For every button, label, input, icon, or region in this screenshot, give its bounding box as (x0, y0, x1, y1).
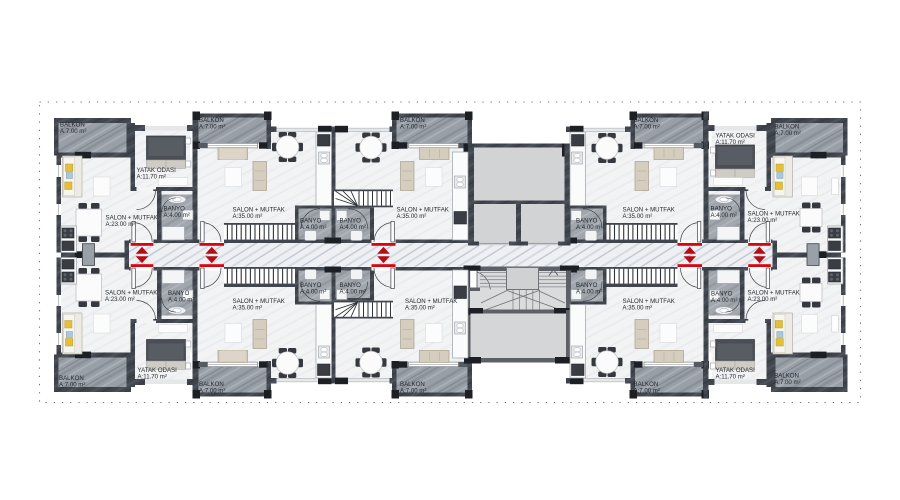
svg-text:A:4.00 m²: A:4.00 m² (300, 289, 326, 296)
svg-text:A:7.00 m²: A:7.00 m² (634, 388, 660, 395)
svg-text:A:23.00 m²: A:23.00 m² (105, 296, 135, 303)
svg-text:A:4.00 m²: A:4.00 m² (576, 224, 602, 231)
svg-text:A:7.00 m²: A:7.00 m² (199, 124, 225, 131)
svg-text:A:35.00 m²: A:35.00 m² (623, 213, 653, 220)
svg-text:A:4.00 m²: A:4.00 m² (340, 224, 366, 231)
svg-text:A:7.00 m²: A:7.00 m² (634, 124, 660, 131)
svg-text:A:7.00 m²: A:7.00 m² (59, 382, 85, 389)
svg-text:A:35.00 m²: A:35.00 m² (405, 304, 435, 311)
svg-text:A:4.00 m²: A:4.00 m² (164, 212, 190, 219)
svg-text:A:23.00 m²: A:23.00 m² (106, 221, 136, 228)
svg-text:A:35.00 m²: A:35.00 m² (233, 304, 263, 311)
svg-text:A:35.00 m²: A:35.00 m² (233, 213, 263, 220)
svg-text:A:4.00 m²: A:4.00 m² (576, 289, 602, 296)
svg-text:A:7.00 m²: A:7.00 m² (400, 388, 426, 395)
svg-text:A:35.00 m²: A:35.00 m² (623, 304, 653, 311)
svg-text:A:11.70 m²: A:11.70 m² (138, 374, 167, 381)
svg-text:A:11.70 m²: A:11.70 m² (137, 174, 166, 181)
svg-text:A:7.00 m²: A:7.00 m² (400, 124, 426, 131)
svg-text:A:4.00 m²: A:4.00 m² (300, 224, 326, 231)
svg-text:A:7.00 m²: A:7.00 m² (199, 388, 225, 395)
svg-text:A:23.00 m²: A:23.00 m² (748, 296, 778, 303)
svg-text:A:4.00 m²: A:4.00 m² (340, 289, 366, 296)
svg-text:A:23.00 m²: A:23.00 m² (748, 217, 778, 224)
svg-text:A:11.70 m²: A:11.70 m² (716, 139, 745, 146)
svg-text:A:7.00 m²: A:7.00 m² (775, 130, 801, 137)
svg-text:A:4.00 m²: A:4.00 m² (168, 297, 194, 304)
svg-text:A:4.00 m²: A:4.00 m² (711, 297, 737, 304)
svg-text:A:4.00 m²: A:4.00 m² (711, 212, 737, 219)
svg-text:A:7.00 m²: A:7.00 m² (60, 128, 86, 135)
svg-text:A:35.00 m²: A:35.00 m² (397, 213, 427, 220)
svg-text:A:11.70 m²: A:11.70 m² (716, 374, 745, 381)
svg-text:A:7.00 m²: A:7.00 m² (774, 379, 800, 386)
